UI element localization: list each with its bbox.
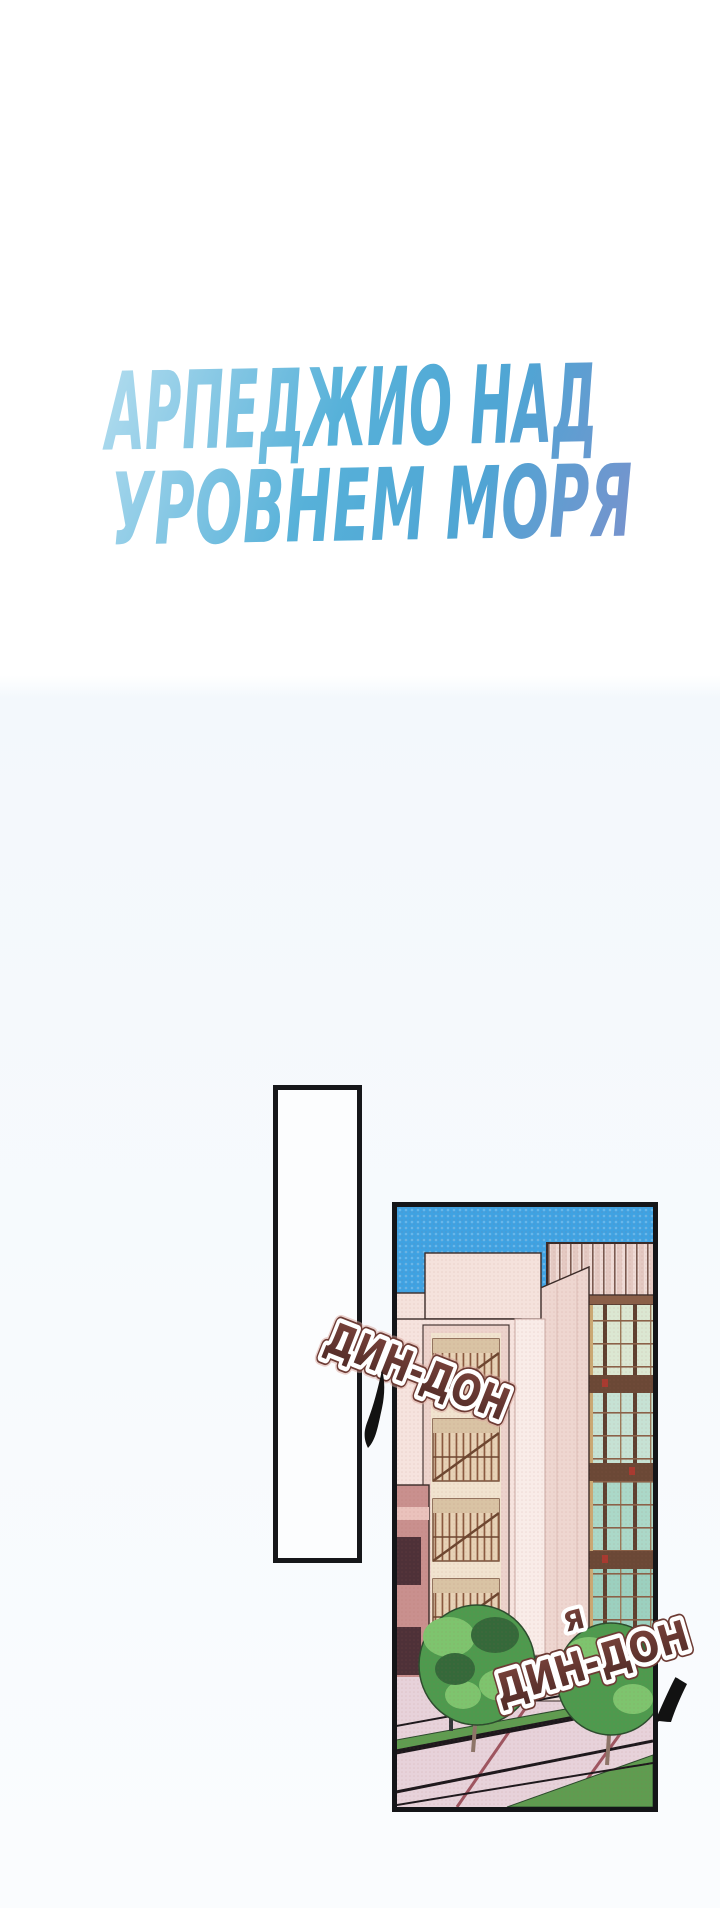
empty-panel — [273, 1085, 362, 1563]
title-line-2: УРОВНЕМ МОРЯ — [110, 442, 634, 568]
building-art — [397, 1207, 653, 1807]
sfx-tail-1-icon — [358, 1368, 392, 1452]
webtoon-page: АРПЕДЖИО НАД УРОВНЕМ МОРЯ — [0, 0, 720, 1908]
series-title: АРПЕДЖИО НАД УРОВНЕМ МОРЯ — [96, 350, 648, 570]
scene-panel — [392, 1202, 658, 1812]
